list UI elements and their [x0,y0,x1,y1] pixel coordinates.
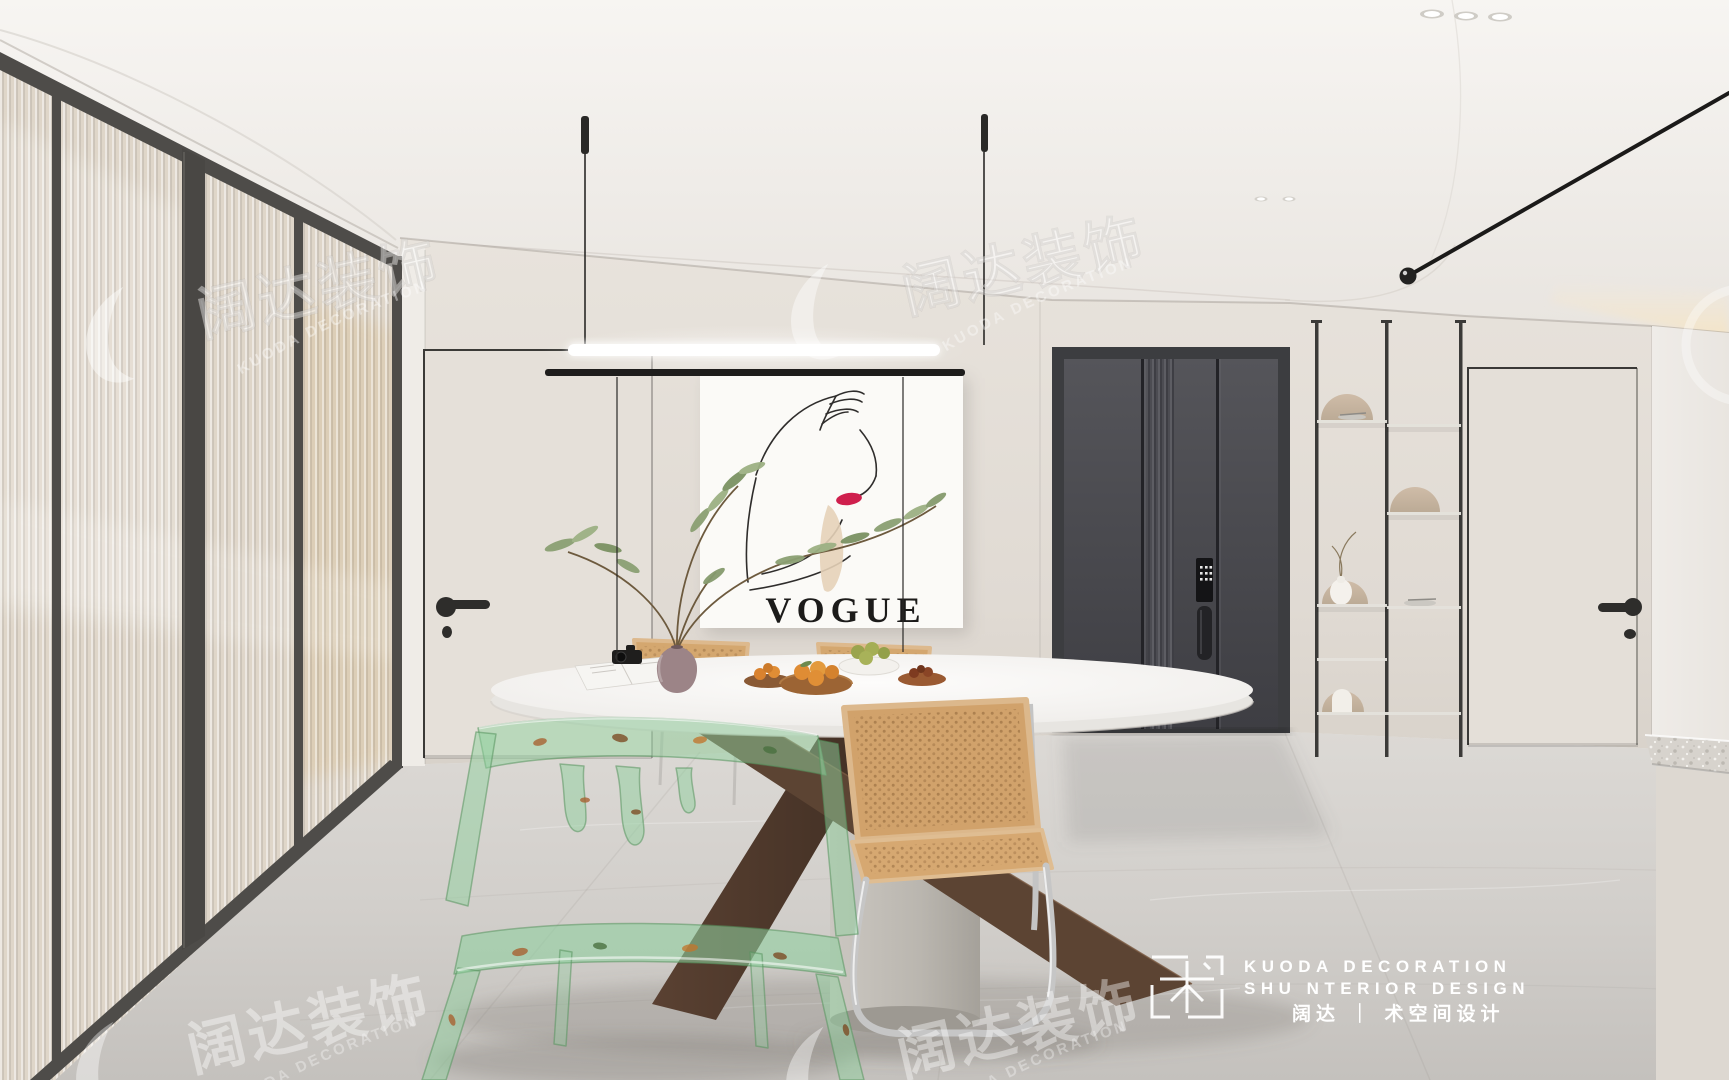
pendant-bar [545,369,965,376]
logo-line1: KUODA DECORATION [1244,957,1511,976]
rendering-canvas: VOGUE [0,0,1729,1080]
smart-lock [1196,558,1213,660]
logo-line3: 阔达 ｜ 术空间设计 [1292,1002,1505,1025]
interior-door-right [1468,368,1642,747]
right-cabinet [1645,326,1729,1080]
led-tube [568,344,940,356]
wall-pilaster [402,248,425,766]
logo-line2: SHU NTERIOR DESIGN [1244,979,1530,998]
